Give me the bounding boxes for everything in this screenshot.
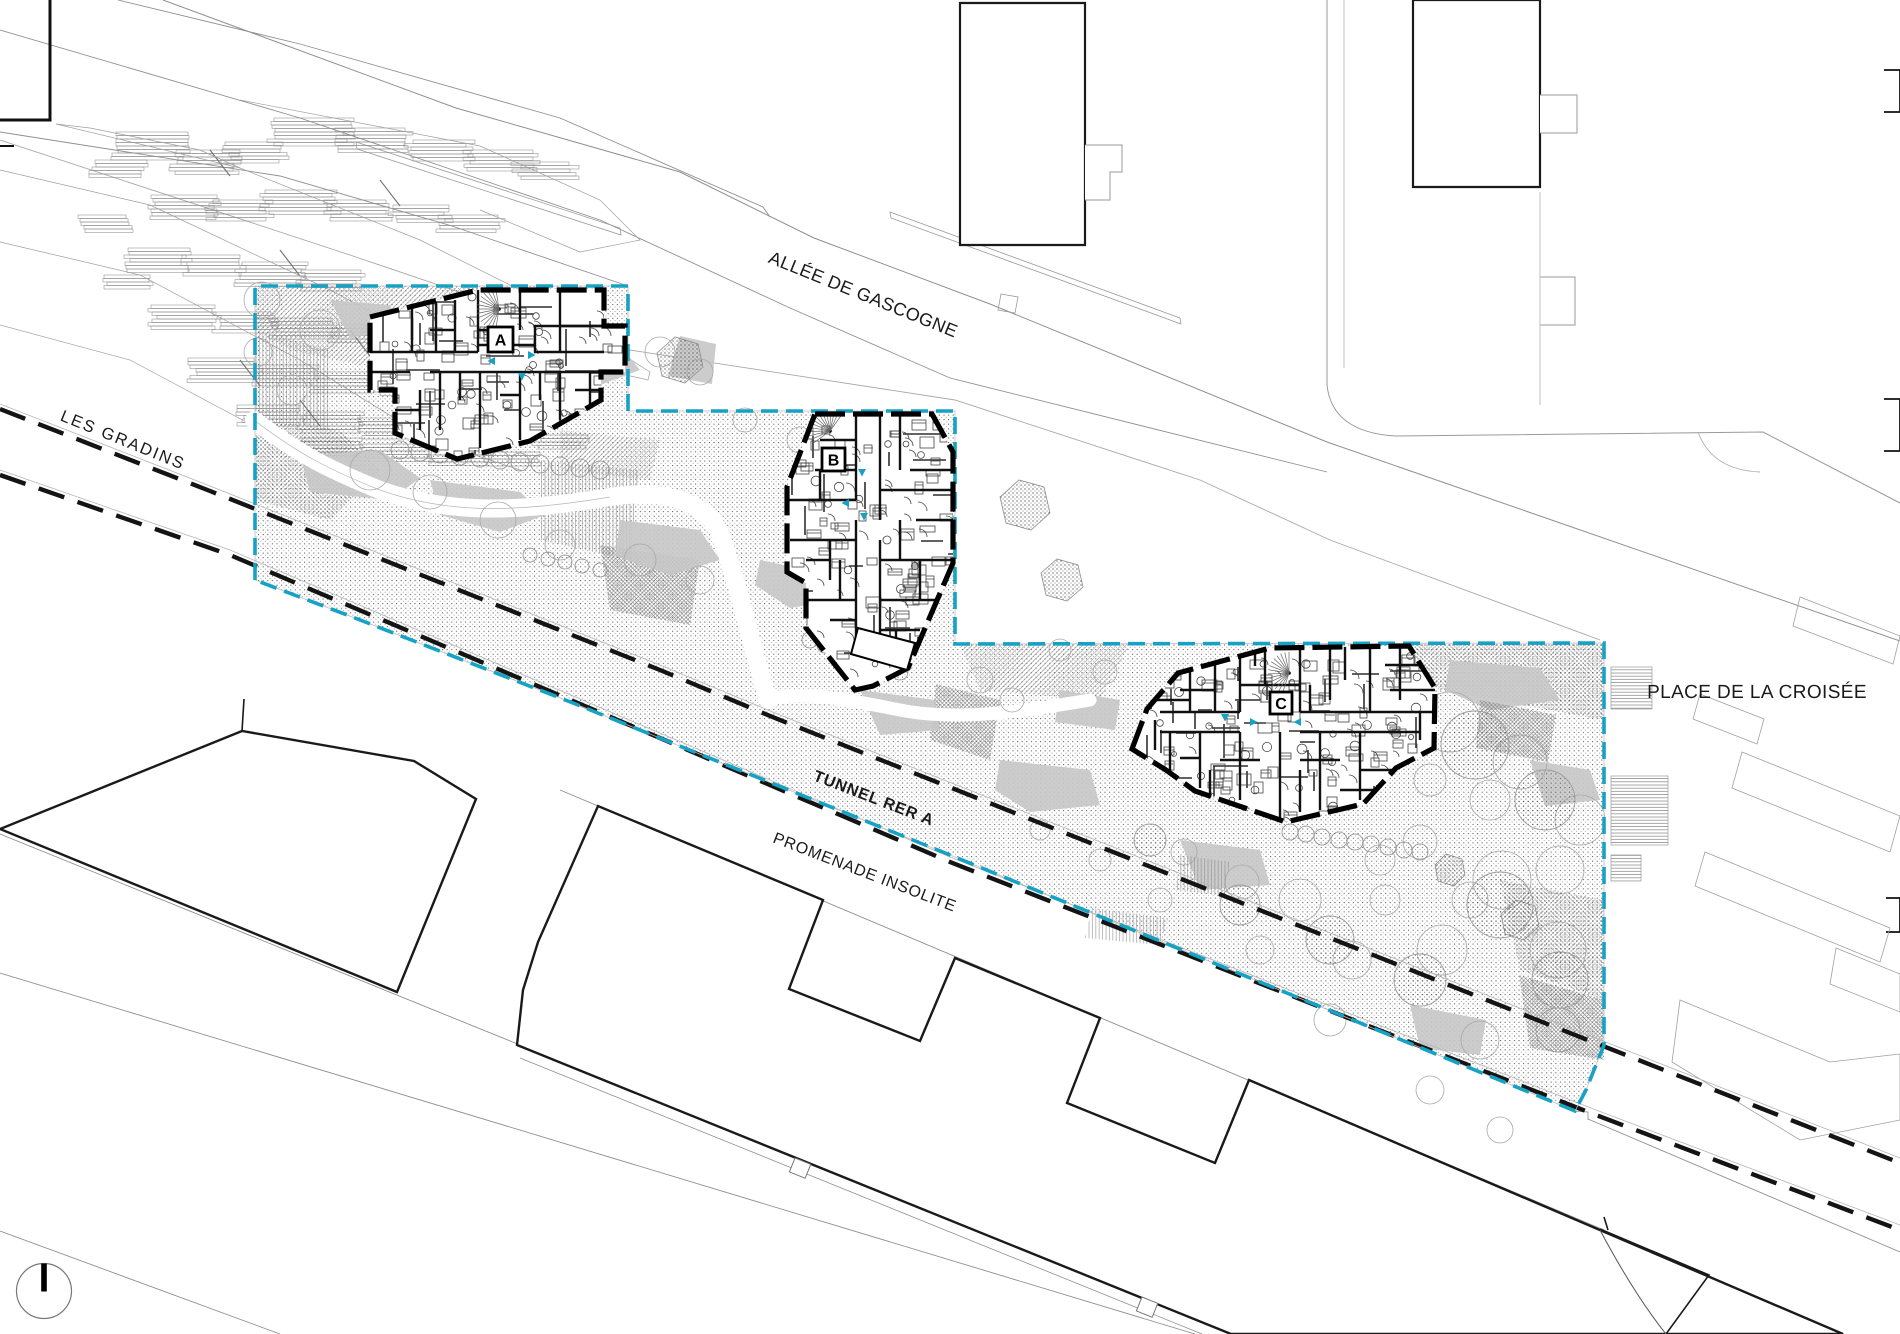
svg-text:C: C xyxy=(1275,696,1287,713)
svg-text:PLACE DE LA CROISÉE: PLACE DE LA CROISÉE xyxy=(1647,681,1867,703)
svg-text:B: B xyxy=(828,453,840,470)
svg-text:A: A xyxy=(495,333,507,350)
